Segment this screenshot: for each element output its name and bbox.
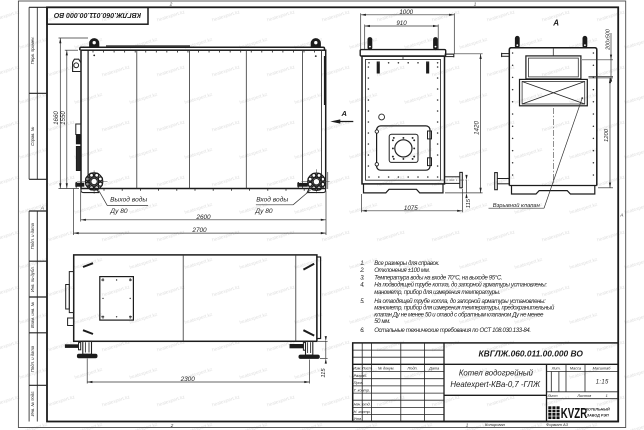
svg-text:heatexpert.kz: heatexpert.kz [156,9,186,23]
svg-text:heatexpert.kz: heatexpert.kz [514,257,544,271]
svg-text:heatexpert.kz: heatexpert.kz [404,37,434,51]
svg-text:heatexpert.kz: heatexpert.kz [184,92,214,106]
svg-text:heatexpert.kz: heatexpert.kz [239,367,269,381]
svg-text:heatexpert.kz: heatexpert.kz [459,257,489,271]
svg-text:heatexpert.kz: heatexpert.kz [294,367,324,381]
svg-text:Копировал: Копировал [485,422,506,427]
svg-text:heatexpert.kz: heatexpert.kz [321,9,351,23]
svg-text:heatexpert.kz: heatexpert.kz [459,37,489,51]
svg-text:heatexpert.kz: heatexpert.kz [349,147,379,161]
svg-text:heatexpert.kz: heatexpert.kz [376,339,406,353]
svg-text:A: A [619,213,623,219]
svg-text:heatexpert.kz: heatexpert.kz [266,9,296,23]
svg-text:heatexpert.kz: heatexpert.kz [46,174,76,188]
svg-text:heatexpert.kz: heatexpert.kz [156,174,186,188]
svg-text:1.: 1. [360,261,364,267]
svg-text:heatexpert.kz: heatexpert.kz [404,422,434,430]
svg-text:heatexpert.kz: heatexpert.kz [569,257,599,271]
svg-text:heatexpert.kz: heatexpert.kz [294,202,324,216]
svg-text:Взам. инв. №: Взам. инв. № [30,301,35,327]
svg-text:heatexpert.kz: heatexpert.kz [184,147,214,161]
svg-text:heatexpert.kz: heatexpert.kz [349,92,379,106]
svg-text:heatexpert.kz: heatexpert.kz [239,422,269,430]
svg-text:Справ. №: Справ. № [30,126,35,145]
svg-text:heatexpert.kz: heatexpert.kz [431,9,461,23]
svg-text:1075: 1075 [404,205,418,212]
svg-text:Ду 80: Ду 80 [109,208,128,215]
svg-text:A: A [340,109,346,118]
svg-text:heatexpert.kz: heatexpert.kz [129,367,159,381]
svg-text:heatexpert.kz: heatexpert.kz [459,202,489,216]
svg-text:Взрывной клапан: Взрывной клапан [493,202,541,209]
svg-text:heatexpert.kz: heatexpert.kz [211,229,241,243]
svg-text:heatexpert.kz: heatexpert.kz [294,257,324,271]
svg-text:heatexpert.kz: heatexpert.kz [19,147,49,161]
svg-text:heatexpert.kz: heatexpert.kz [211,284,241,298]
svg-text:heatexpert.kz: heatexpert.kz [541,64,571,78]
svg-text:heatexpert.kz: heatexpert.kz [321,284,351,298]
svg-text:1: 1 [474,1,477,6]
svg-text:heatexpert.kz: heatexpert.kz [431,229,461,243]
svg-text:Нач. отд.: Нач. отд. [354,403,371,407]
svg-text:heatexpert.kz: heatexpert.kz [514,422,544,430]
svg-text:heatexpert.kz: heatexpert.kz [239,92,269,106]
svg-text:heatexpert.kz: heatexpert.kz [211,64,241,78]
svg-text:Подп.: Подп. [408,367,418,371]
svg-text:Heatexpert-КВа-0,7 -ГЛЖ: Heatexpert-КВа-0,7 -ГЛЖ [450,380,540,389]
svg-text:Остальные технические требован: Остальные технические требования по ОСТ … [374,328,530,334]
svg-text:heatexpert.kz: heatexpert.kz [184,37,214,51]
svg-text:1:15: 1:15 [596,380,609,386]
svg-text:Выход воды: Выход воды [110,195,147,203]
svg-text:Ду 80: Ду 80 [254,208,273,215]
svg-text:Пров.: Пров. [354,381,364,385]
svg-text:heatexpert.kz: heatexpert.kz [486,229,516,243]
svg-text:heatexpert.kz: heatexpert.kz [569,312,599,326]
svg-text:Разраб.: Разраб. [354,374,368,378]
svg-text:heatexpert.kz: heatexpert.kz [184,422,214,430]
svg-text:heatexpert.kz: heatexpert.kz [486,119,516,133]
svg-text:heatexpert.kz: heatexpert.kz [129,92,159,106]
svg-text:Инв. № дубл.: Инв. № дубл. [30,266,35,292]
svg-text:1: 1 [466,423,469,428]
svg-text:heatexpert.kz: heatexpert.kz [294,92,324,106]
svg-text:Подп. и дата: Подп. и дата [30,222,35,249]
svg-text:heatexpert.kz: heatexpert.kz [624,257,644,271]
svg-text:115: 115 [321,368,327,378]
svg-text:Н. контр.: Н. контр. [354,410,371,414]
svg-text:heatexpert.kz: heatexpert.kz [74,92,104,106]
svg-text:heatexpert.kz: heatexpert.kz [156,119,186,133]
svg-text:heatexpert.kz: heatexpert.kz [486,64,516,78]
svg-text:heatexpert.kz: heatexpert.kz [376,394,406,408]
svg-text:A: A [552,19,559,28]
svg-text:heatexpert.kz: heatexpert.kz [541,229,571,243]
svg-text:heatexpert.kz: heatexpert.kz [624,367,644,381]
svg-text:5.: 5. [360,299,364,305]
svg-text:heatexpert.kz: heatexpert.kz [596,119,626,133]
svg-text:heatexpert.kz: heatexpert.kz [624,422,644,430]
svg-text:heatexpert.kz: heatexpert.kz [596,394,626,408]
svg-text:heatexpert.kz: heatexpert.kz [74,202,104,216]
svg-text:2: 2 [170,423,174,428]
svg-text:2300: 2300 [180,376,196,383]
svg-text:heatexpert.kz: heatexpert.kz [239,147,269,161]
svg-text:КОТЕЛЬНЫЙ: КОТЕЛЬНЫЙ [586,407,610,411]
svg-text:4.: 4. [360,283,364,289]
svg-text:heatexpert.kz: heatexpert.kz [624,147,644,161]
svg-text:heatexpert.kz: heatexpert.kz [569,147,599,161]
svg-text:heatexpert.kz: heatexpert.kz [101,229,131,243]
svg-text:heatexpert.kz: heatexpert.kz [624,202,644,216]
svg-text:heatexpert.kz: heatexpert.kz [321,394,351,408]
svg-text:Масса: Масса [570,367,581,371]
svg-text:heatexpert.kz: heatexpert.kz [431,394,461,408]
svg-text:Лит.: Лит. [551,367,561,371]
svg-text:heatexpert.kz: heatexpert.kz [266,394,296,408]
svg-text:heatexpert.kz: heatexpert.kz [596,174,626,188]
svg-text:heatexpert.kz: heatexpert.kz [211,9,241,23]
svg-text:Масштаб: Масштаб [593,367,612,371]
svg-text:50 мм.: 50 мм. [374,319,390,325]
svg-text:heatexpert.kz: heatexpert.kz [239,257,269,271]
svg-text:heatexpert.kz: heatexpert.kz [596,229,626,243]
svg-text:Дата: Дата [428,367,439,371]
svg-text:1000: 1000 [399,9,413,16]
svg-text:6.: 6. [360,328,364,334]
svg-text:heatexpert.kz: heatexpert.kz [211,394,241,408]
svg-text:heatexpert.kz: heatexpert.kz [459,92,489,106]
svg-text:heatexpert.kz: heatexpert.kz [404,147,434,161]
svg-text:2600: 2600 [195,214,211,221]
svg-text:Все размеры для справок.: Все размеры для справок. [374,261,439,267]
svg-text:heatexpert.kz: heatexpert.kz [431,119,461,133]
svg-text:heatexpert.kz: heatexpert.kz [74,422,104,430]
svg-text:ЗАВОД РЭП: ЗАВОД РЭП [587,414,609,418]
svg-text:Котел водогрейный: Котел водогрейный [459,368,534,377]
svg-text:heatexpert.kz: heatexpert.kz [431,339,461,353]
svg-text:Изм.: Изм. [353,367,361,371]
svg-text:heatexpert.kz: heatexpert.kz [46,64,76,78]
svg-text:2700: 2700 [191,227,207,234]
svg-text:heatexpert.kz: heatexpert.kz [46,394,76,408]
svg-text:heatexpert.kz: heatexpert.kz [129,147,159,161]
svg-text:№ докум.: № докум. [378,367,395,371]
svg-text:На отводящей трубе котла, до з: На отводящей трубе котла, до запорной ар… [374,298,546,305]
svg-text:A: A [40,206,44,212]
svg-text:heatexpert.kz: heatexpert.kz [349,422,379,430]
svg-text:Перв. примен.: Перв. примен. [30,36,35,64]
svg-text:heatexpert.kz: heatexpert.kz [596,339,626,353]
svg-text:heatexpert.kz: heatexpert.kz [376,229,406,243]
svg-text:heatexpert.kz: heatexpert.kz [486,9,516,23]
svg-text:heatexpert.kz: heatexpert.kz [569,202,599,216]
svg-text:Вход воды: Вход воды [256,195,288,203]
svg-text:heatexpert.kz: heatexpert.kz [211,174,241,188]
svg-text:heatexpert.kz: heatexpert.kz [294,422,324,430]
svg-text:heatexpert.kz: heatexpert.kz [404,92,434,106]
svg-text:heatexpert.kz: heatexpert.kz [266,229,296,243]
svg-text:heatexpert.kz: heatexpert.kz [266,64,296,78]
svg-text:heatexpert.kz: heatexpert.kz [129,422,159,430]
svg-text:heatexpert.kz: heatexpert.kz [431,174,461,188]
svg-text:Утв.: Утв. [354,417,363,421]
svg-text:heatexpert.kz: heatexpert.kz [129,202,159,216]
svg-text:heatexpert.kz: heatexpert.kz [101,119,131,133]
svg-text:heatexpert.kz: heatexpert.kz [211,119,241,133]
svg-text:КВГЛЖ.060.011.00.000 ВО: КВГЛЖ.060.011.00.000 ВО [53,11,141,18]
svg-text:heatexpert.kz: heatexpert.kz [541,174,571,188]
svg-text:heatexpert.kz: heatexpert.kz [129,257,159,271]
svg-text:heatexpert.kz: heatexpert.kz [101,64,131,78]
svg-text:heatexpert.kz: heatexpert.kz [624,37,644,51]
svg-text:heatexpert.kz: heatexpert.kz [101,394,131,408]
svg-text:Лист: Лист [547,394,558,398]
svg-text:Формат А3: Формат А3 [546,422,569,427]
svg-text:heatexpert.kz: heatexpert.kz [569,422,599,430]
svg-text:Лист: Лист [361,367,372,371]
svg-text:heatexpert.kz: heatexpert.kz [239,37,269,51]
svg-text:heatexpert.kz: heatexpert.kz [74,367,104,381]
svg-text:манометр, прибор для измерения: манометр, прибор для измерения температу… [374,290,500,296]
svg-text:На подводящей трубе котла, до: На подводящей трубе котла, до запорной а… [374,282,547,289]
svg-text:heatexpert.kz: heatexpert.kz [349,202,379,216]
svg-text:heatexpert.kz: heatexpert.kz [541,119,571,133]
svg-text:heatexpert.kz: heatexpert.kz [459,147,489,161]
svg-text:heatexpert.kz: heatexpert.kz [156,64,186,78]
svg-text:heatexpert.kz: heatexpert.kz [129,37,159,51]
svg-text:heatexpert.kz: heatexpert.kz [266,284,296,298]
svg-text:heatexpert.kz: heatexpert.kz [624,92,644,106]
svg-text:1: 1 [606,394,608,398]
svg-text:Температура воды на входе 70°С: Температура воды на входе 70°С, на выход… [374,275,502,281]
svg-text:heatexpert.kz: heatexpert.kz [266,174,296,188]
svg-text:heatexpert.kz: heatexpert.kz [46,229,76,243]
svg-text:1660: 1660 [53,111,60,125]
svg-text:КВГЛЖ.060.011.00.000 ВО: КВГЛЖ.060.011.00.000 ВО [479,349,584,359]
svg-text:Т. контр.: Т. контр. [354,388,370,392]
svg-text:heatexpert.kz: heatexpert.kz [349,37,379,51]
svg-text:heatexpert.kz: heatexpert.kz [101,284,131,298]
svg-text:heatexpert.kz: heatexpert.kz [294,147,324,161]
svg-text:heatexpert.kz: heatexpert.kz [239,312,269,326]
svg-text:heatexpert.kz: heatexpert.kz [156,284,186,298]
svg-text:heatexpert.kz: heatexpert.kz [266,119,296,133]
svg-text:heatexpert.kz: heatexpert.kz [19,422,49,430]
svg-text:heatexpert.kz: heatexpert.kz [156,394,186,408]
svg-text:Подп. и дата: Подп. и дата [30,345,35,372]
svg-text:1200: 1200 [604,128,610,142]
svg-text:heatexpert.kz: heatexpert.kz [514,147,544,161]
svg-text:200х500: 200х500 [605,29,611,51]
svg-text:heatexpert.kz: heatexpert.kz [376,174,406,188]
svg-text:heatexpert.kz: heatexpert.kz [46,284,76,298]
svg-text:heatexpert.kz: heatexpert.kz [184,312,214,326]
svg-text:Листов: Листов [576,394,591,398]
svg-text:1550: 1550 [60,111,67,125]
svg-text:клапан Ду не менее 50 и отвод: клапан Ду не менее 50 и отвод с обратным… [374,313,544,319]
svg-text:2.: 2. [359,268,364,274]
svg-text:2: 2 [169,2,173,7]
svg-text:heatexpert.kz: heatexpert.kz [376,64,406,78]
svg-text:115: 115 [466,198,472,208]
svg-text:KVZR: KVZR [561,406,588,422]
svg-text:heatexpert.kz: heatexpert.kz [431,64,461,78]
svg-text:heatexpert.kz: heatexpert.kz [19,202,49,216]
svg-text:манометр, прибор для измерения: манометр, прибор для измерения температу… [374,304,555,311]
svg-text:heatexpert.kz: heatexpert.kz [596,284,626,298]
svg-text:910: 910 [396,20,407,27]
svg-text:heatexpert.kz: heatexpert.kz [156,229,186,243]
svg-text:Инв. № подл.: Инв. № подл. [30,390,35,416]
svg-text:heatexpert.kz: heatexpert.kz [294,312,324,326]
svg-text:Отклонения ±100 мм.: Отклонения ±100 мм. [374,268,430,274]
svg-text:3.: 3. [360,275,364,281]
svg-text:heatexpert.kz: heatexpert.kz [486,394,516,408]
svg-text:1420: 1420 [473,121,480,135]
svg-text:heatexpert.kz: heatexpert.kz [184,257,214,271]
svg-text:heatexpert.kz: heatexpert.kz [624,312,644,326]
svg-text:heatexpert.kz: heatexpert.kz [596,9,626,23]
